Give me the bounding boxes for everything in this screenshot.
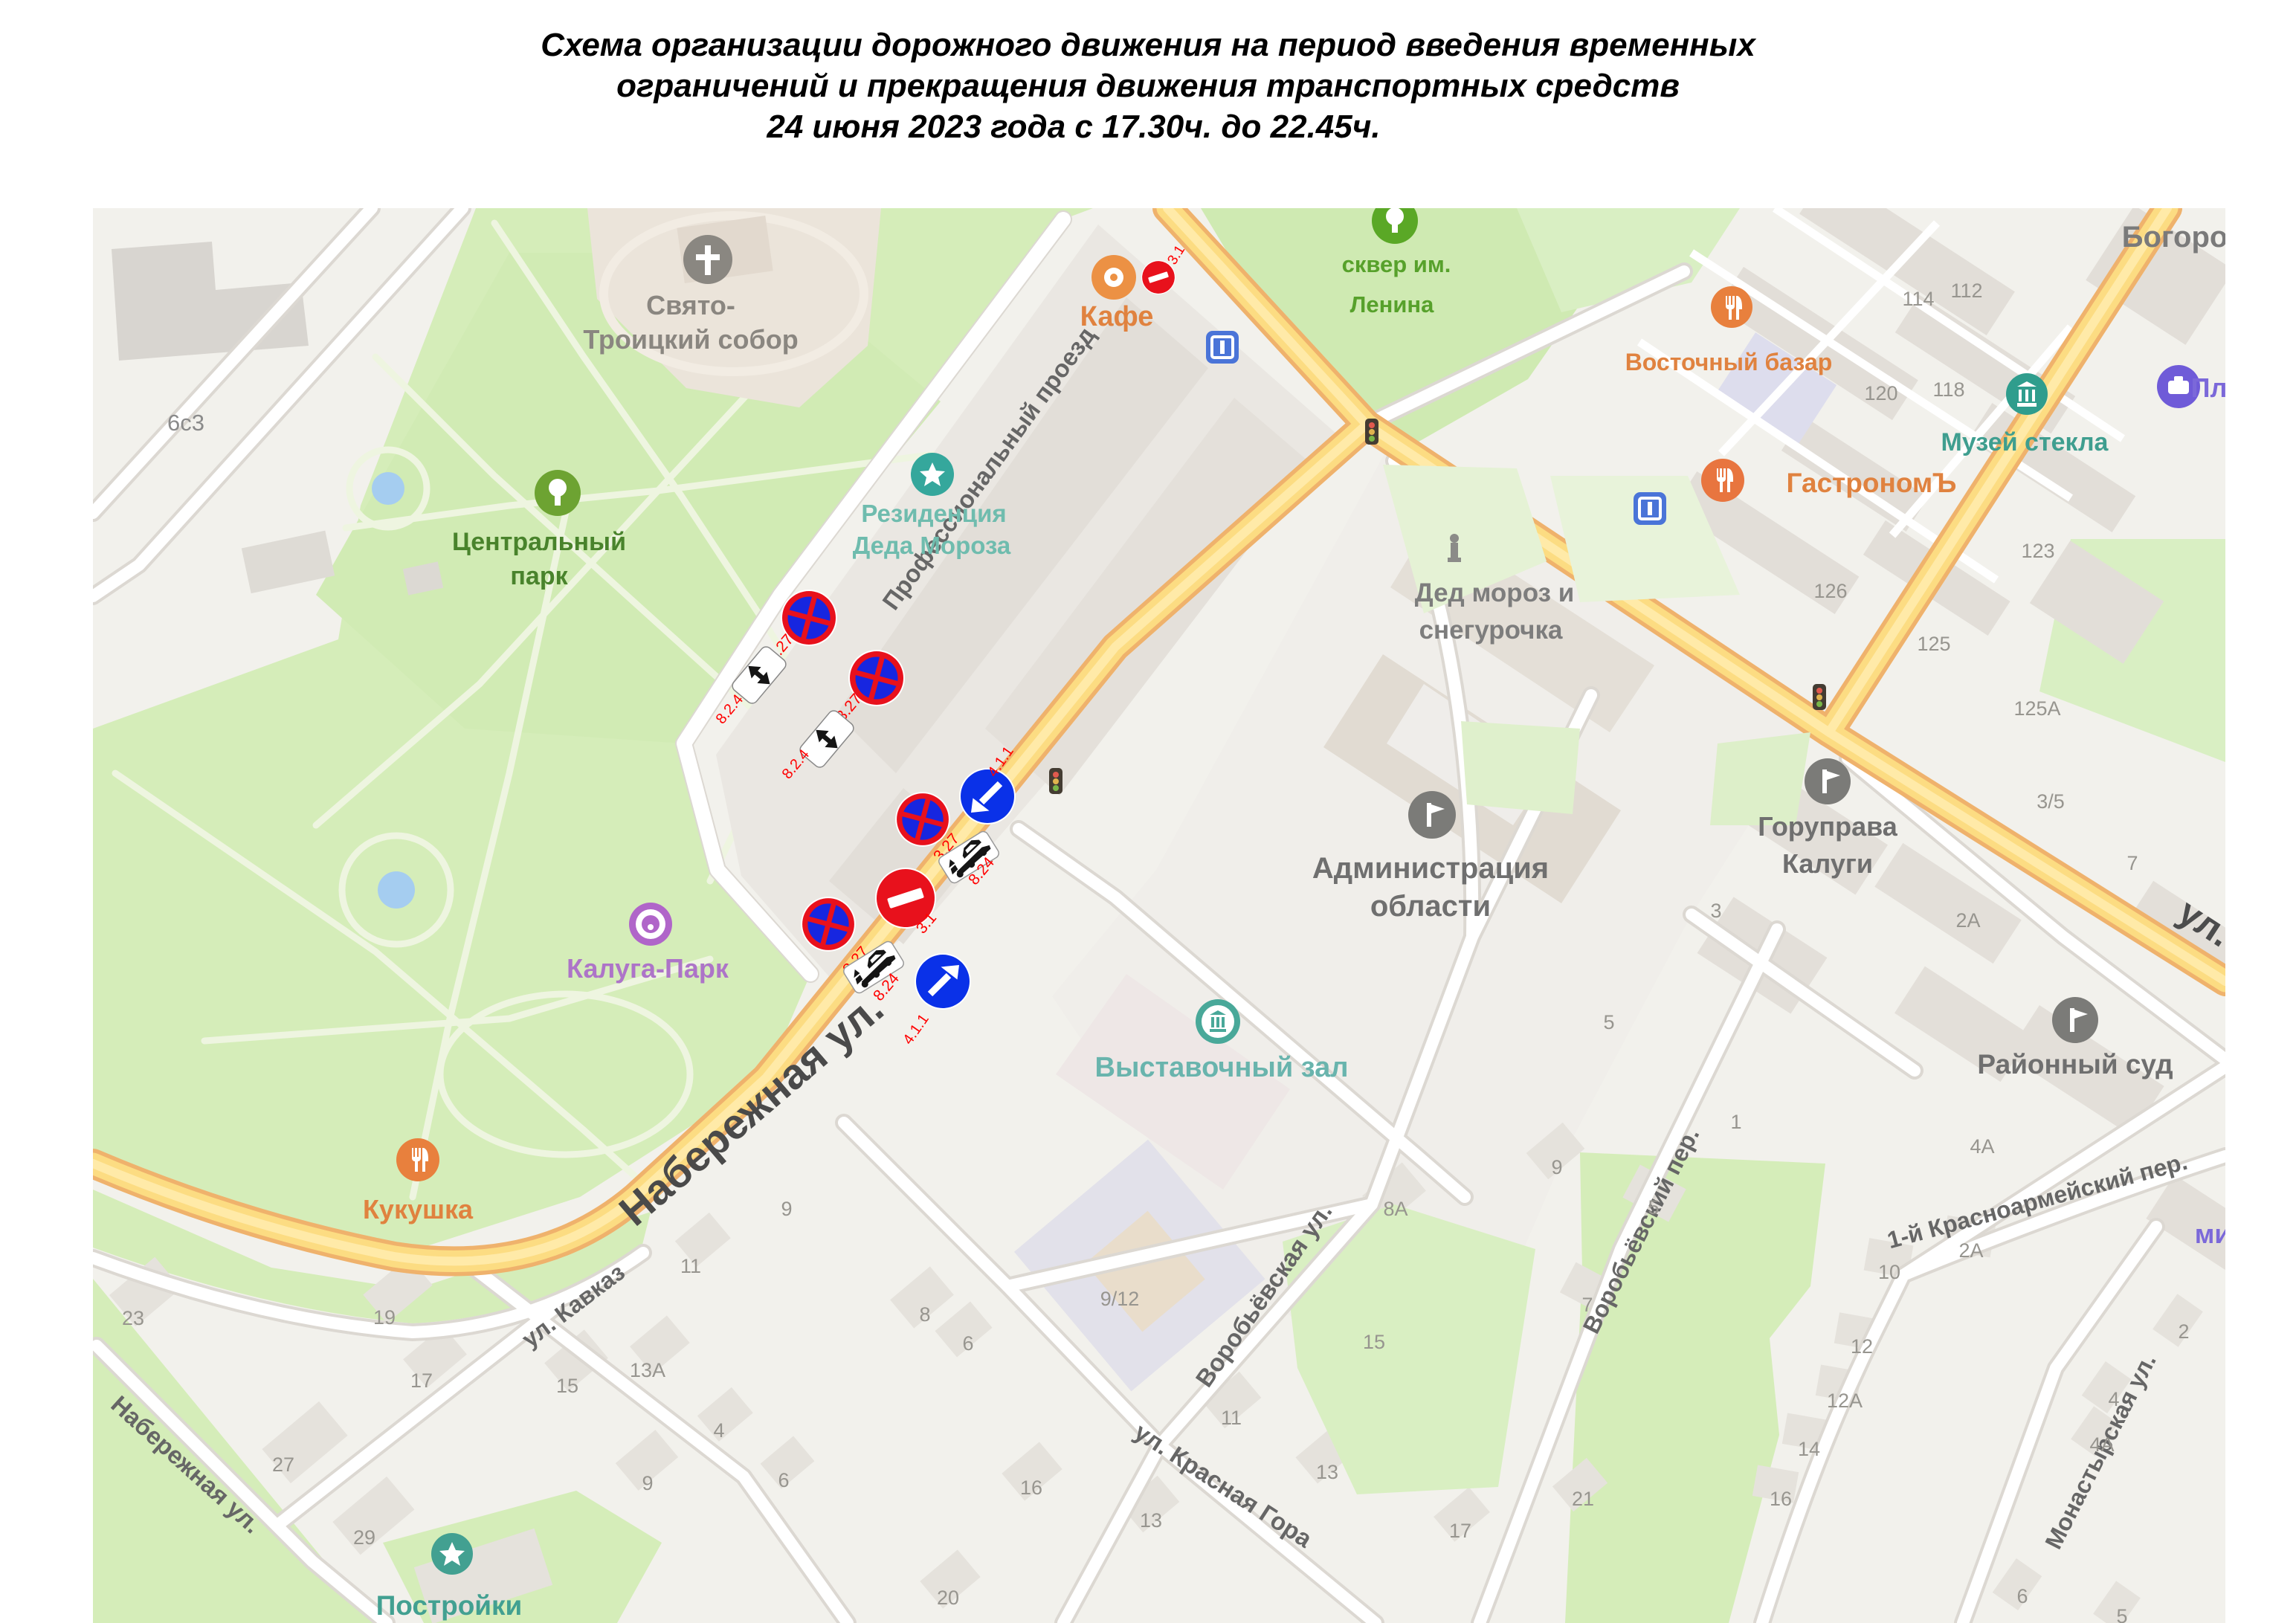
svg-text:5: 5 [1603,1011,1614,1033]
svg-text:9: 9 [781,1198,792,1220]
svg-text:2А: 2А [1958,1239,1983,1262]
svg-text:11: 11 [1221,1407,1242,1429]
svg-text:Калуги: Калуги [1782,848,1873,879]
svg-text:20: 20 [937,1587,959,1609]
svg-text:6с3: 6с3 [167,410,204,436]
svg-text:126: 126 [1813,580,1847,602]
svg-text:Горуправа: Горуправа [1758,811,1898,842]
svg-text:16: 16 [1020,1477,1042,1499]
svg-text:114: 114 [1902,288,1934,310]
svg-text:Деда Мороза: Деда Мороза [853,532,1011,559]
svg-text:4: 4 [2108,1388,2119,1410]
svg-text:7: 7 [2126,852,2138,874]
svg-text:Выставочный зал: Выставочный зал [1095,1052,1349,1083]
svg-text:4А: 4А [2089,1433,2114,1456]
svg-text:9: 9 [1551,1156,1562,1178]
svg-text:23: 23 [122,1307,144,1329]
svg-text:Восточный базар: Восточный базар [1625,349,1833,375]
svg-text:120: 120 [1864,382,1897,404]
svg-text:4А: 4А [1970,1135,1994,1158]
svg-text:3/5: 3/5 [2037,790,2065,813]
svg-text:1: 1 [1730,1111,1741,1133]
svg-text:парк: парк [510,562,568,590]
svg-text:снегурочка: снегурочка [1419,616,1563,645]
svg-text:области: области [1370,890,1491,923]
svg-text:19: 19 [373,1306,396,1329]
svg-text:2: 2 [2178,1320,2189,1343]
svg-text:Музей стекла: Музей стекла [1941,428,2109,456]
svg-text:Кафе: Кафе [1080,301,1154,332]
svg-text:Администрация: Администрация [1312,852,1549,885]
svg-text:16: 16 [1770,1488,1792,1510]
svg-text:13: 13 [1316,1461,1338,1483]
svg-text:27: 27 [272,1453,294,1476]
svg-text:13: 13 [1140,1509,1162,1532]
svg-text:6: 6 [962,1332,973,1355]
svg-text:112: 112 [1950,280,1982,302]
svg-text:14: 14 [1798,1438,1820,1460]
svg-text:8: 8 [919,1303,930,1326]
svg-text:ГастрономЪ: ГастрономЪ [1787,468,1957,498]
svg-text:123: 123 [2021,540,2054,562]
svg-text:Свято-: Свято- [646,290,735,320]
svg-text:12: 12 [1851,1335,1873,1358]
svg-text:125А: 125А [2013,697,2060,720]
svg-text:Дед мороз и: Дед мороз и [1415,578,1575,607]
svg-text:5: 5 [1648,1196,1659,1219]
svg-text:17: 17 [1449,1520,1471,1542]
svg-text:Районный суд: Районный суд [1977,1049,2173,1080]
svg-text:10: 10 [1878,1261,1900,1283]
svg-text:Постройки: Постройки [376,1590,523,1621]
svg-text:Богоро: Богоро [2122,221,2225,254]
svg-text:15: 15 [556,1375,578,1397]
svg-text:9/12: 9/12 [1100,1288,1140,1310]
svg-text:11: 11 [680,1255,701,1277]
svg-text:29: 29 [353,1526,375,1549]
svg-text:118: 118 [1932,378,1964,401]
svg-text:15: 15 [1363,1331,1385,1353]
svg-text:Троицкий собор: Троицкий собор [583,324,798,355]
svg-text:мин: мин [2195,1219,2225,1249]
svg-text:2А: 2А [1955,909,1980,932]
svg-text:5: 5 [2116,1605,2127,1623]
svg-text:4: 4 [713,1419,724,1442]
svg-text:17: 17 [410,1369,433,1392]
svg-text:12А: 12А [1827,1390,1863,1412]
svg-text:21: 21 [1572,1488,1594,1510]
svg-text:8А: 8А [1383,1198,1407,1220]
svg-text:6: 6 [778,1469,789,1491]
svg-text:3: 3 [1710,900,1721,922]
svg-text:Пла: Пла [2191,372,2225,403]
svg-text:7: 7 [1581,1294,1593,1316]
svg-text:Резиденция: Резиденция [861,500,1006,527]
svg-text:Ленина: Ленина [1350,291,1434,317]
svg-text:125: 125 [1917,633,1950,655]
svg-text:Калуга-Парк: Калуга-Парк [567,953,729,984]
svg-text:6: 6 [2016,1585,2028,1607]
svg-text:сквер им.: сквер им. [1342,251,1451,277]
svg-text:Центральный: Центральный [452,528,626,556]
svg-text:9: 9 [642,1472,653,1494]
svg-text:Кукушка: Кукушка [363,1194,474,1224]
svg-text:13А: 13А [630,1359,665,1381]
